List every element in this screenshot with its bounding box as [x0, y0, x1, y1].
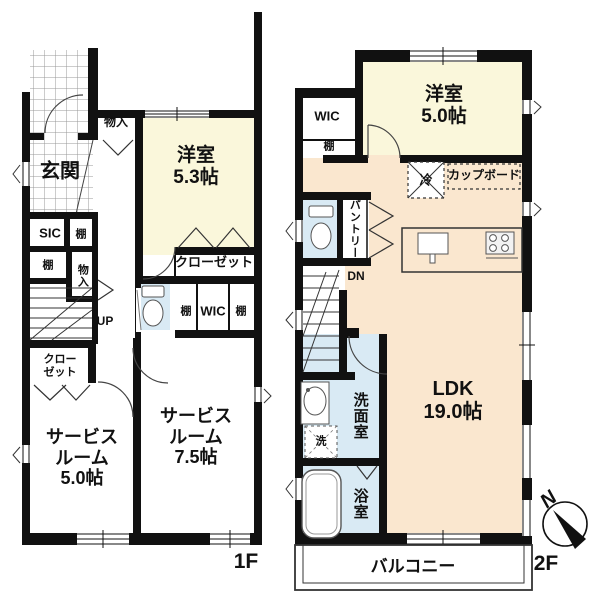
cupboard-label: カップボード: [448, 169, 520, 183]
shelf-label: 棚: [324, 141, 335, 154]
room-label-sic: SIC: [39, 227, 61, 242]
toilet-icon-1f: [142, 286, 164, 326]
room-label-service-left: サービスルーム 5.0帖: [42, 427, 122, 489]
room-label-bathroom: 浴室: [351, 488, 368, 520]
room-label-ldk: LDK 19.0帖: [424, 378, 483, 424]
stairs-up-1f: [30, 288, 92, 340]
refrigerator-label: 冷: [419, 174, 432, 189]
stairs-up-label: UP: [97, 315, 114, 329]
wic-label-2f: WIC: [314, 110, 339, 125]
floor-1-label: 1F: [234, 550, 259, 574]
closet-label-lower: クローゼット: [40, 353, 80, 378]
room-label-western-1f: 洋室 5.3帖: [173, 145, 218, 189]
entrance-porch-tiles: [30, 50, 88, 135]
stove-icon: [486, 232, 518, 258]
room-label-western-2f: 洋室 5.0帖: [421, 84, 466, 128]
door-gap: [141, 330, 175, 338]
room-label-washroom: 洗面室: [351, 392, 368, 440]
shelf-label: 棚: [76, 229, 87, 242]
room-label-service-right: サービスルーム 7.5帖: [156, 406, 236, 468]
floorplan-drawing: [0, 0, 600, 600]
balcony-label: バルコニー: [371, 557, 456, 577]
room-label-storage-side: 物入: [76, 264, 89, 288]
floorplan-canvas: 玄関 物入 洋室 5.3帖 SIC 棚 棚 物入 UP クローゼット 棚 WIC…: [0, 0, 600, 600]
stairs-down-label: DN: [347, 270, 364, 284]
shelf-label: 棚: [236, 306, 247, 319]
washer-label: 洗: [316, 436, 327, 449]
room-label-storage-top: 物入: [104, 116, 128, 130]
bathtub-icon: [302, 470, 341, 538]
washbasin-icon: [301, 382, 329, 424]
room-label-entrance: 玄関: [40, 161, 80, 184]
shelf-label: 棚: [181, 306, 192, 319]
door-gap: [368, 155, 400, 163]
wic-label-1f: WIC: [200, 305, 225, 320]
closet-label-1f: クローゼット: [175, 256, 253, 271]
floor-2-label: 2F: [534, 552, 559, 576]
shelf-label: 棚: [43, 260, 54, 273]
service-room-left-door-arc: [98, 382, 133, 417]
kitchen-sink-icon: [418, 233, 448, 254]
floor-2-plan: [286, 47, 541, 590]
pantry-label: パントリー: [348, 199, 361, 259]
